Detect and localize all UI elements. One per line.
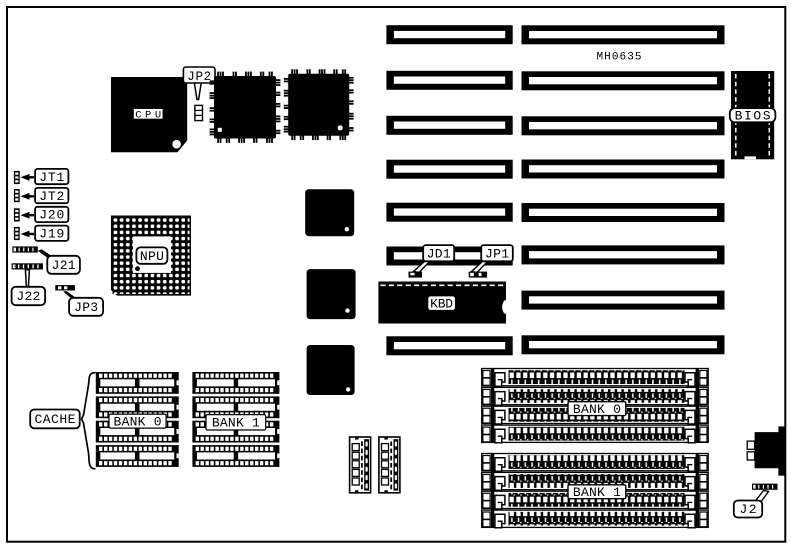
svg-text:J19: J19 [39, 226, 64, 241]
svg-text:BANK 0: BANK 0 [114, 414, 162, 429]
svg-text:MH0635: MH0635 [597, 52, 642, 64]
svg-text:JT1: JT1 [39, 170, 64, 185]
svg-text:BANK 1: BANK 1 [573, 485, 621, 500]
svg-text:BANK 1: BANK 1 [212, 416, 260, 431]
svg-text:J20: J20 [39, 208, 64, 223]
svg-text:JD1: JD1 [427, 246, 451, 261]
svg-text:JP3: JP3 [74, 300, 98, 315]
svg-text:JT2: JT2 [39, 189, 64, 204]
svg-text:BIOS: BIOS [735, 108, 771, 123]
svg-text:J2: J2 [740, 502, 757, 517]
svg-text:J21: J21 [52, 258, 76, 273]
svg-text:JP1: JP1 [485, 246, 509, 261]
svg-text:KBD: KBD [430, 296, 453, 311]
svg-text:BANK 0: BANK 0 [573, 402, 621, 417]
svg-text:JP2: JP2 [187, 70, 211, 84]
svg-text:J22: J22 [16, 289, 40, 304]
svg-text:NPU: NPU [140, 249, 164, 264]
svg-text:CACHE: CACHE [34, 412, 75, 427]
svg-text:CPU: CPU [135, 110, 161, 122]
